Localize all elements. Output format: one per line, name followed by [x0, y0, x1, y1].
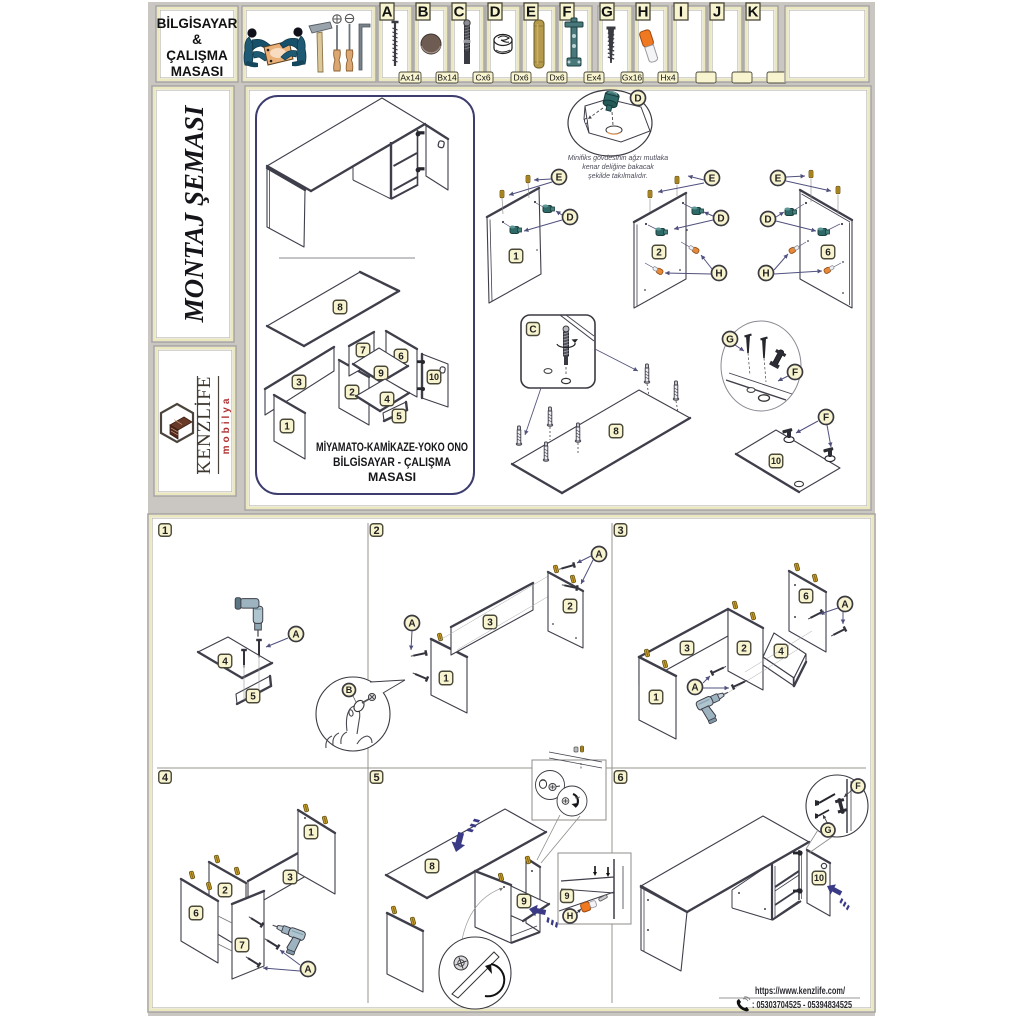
- svg-text:A: A: [292, 630, 299, 641]
- svg-text:1: 1: [653, 693, 659, 704]
- svg-text:5: 5: [373, 772, 379, 784]
- svg-text:KENZLİFE: KENZLİFE: [194, 376, 215, 475]
- svg-text:10: 10: [429, 372, 439, 382]
- svg-text:E: E: [526, 4, 536, 21]
- svg-text:E: E: [709, 174, 716, 185]
- svg-text:2: 2: [567, 602, 573, 613]
- svg-text:E: E: [556, 173, 563, 184]
- svg-text:H: H: [638, 4, 649, 21]
- svg-text:A: A: [382, 4, 393, 21]
- svg-text:H: H: [715, 269, 722, 280]
- svg-text:Minifiks gövdesinin ağzı mutla: Minifiks gövdesinin ağzı mutlaka: [568, 155, 668, 162]
- svg-text:2: 2: [373, 525, 379, 537]
- svg-text:9: 9: [564, 891, 569, 901]
- svg-text:5: 5: [396, 412, 402, 423]
- svg-text:&: &: [192, 32, 202, 47]
- svg-text:G: G: [726, 335, 734, 346]
- svg-text:https://www.kenzlife.com/: https://www.kenzlife.com/: [755, 985, 845, 997]
- svg-text:1: 1: [443, 674, 449, 685]
- svg-text:Dx6: Dx6: [549, 73, 564, 83]
- svg-text:3: 3: [296, 378, 302, 389]
- svg-text:Ax14: Ax14: [400, 73, 420, 83]
- svg-text:H: H: [762, 269, 769, 280]
- svg-text:şekilde takılmalıdır.: şekilde takılmalıdır.: [588, 173, 648, 180]
- svg-text:2: 2: [741, 644, 747, 655]
- svg-text:4: 4: [778, 647, 784, 658]
- svg-text:4: 4: [162, 772, 169, 784]
- svg-text:8: 8: [613, 427, 619, 438]
- svg-text:MİYAMATO-KAMİKAZE-YOKO ONO: MİYAMATO-KAMİKAZE-YOKO ONO: [316, 439, 468, 454]
- svg-text:2: 2: [222, 886, 228, 897]
- svg-text:F: F: [562, 4, 571, 21]
- svg-text:E: E: [775, 174, 782, 185]
- svg-text:F: F: [823, 413, 829, 424]
- svg-text:A: A: [304, 965, 311, 976]
- svg-text:10: 10: [771, 456, 781, 466]
- svg-text:B: B: [418, 4, 429, 21]
- svg-text:kenar deliğine bakacak: kenar deliğine bakacak: [582, 164, 654, 171]
- svg-text:Cx6: Cx6: [475, 73, 490, 83]
- svg-text:3: 3: [287, 873, 293, 884]
- svg-text:MASASI: MASASI: [171, 64, 224, 79]
- svg-text:Hx4: Hx4: [660, 73, 675, 83]
- svg-text:Bx14: Bx14: [437, 73, 457, 83]
- svg-text:I: I: [679, 4, 683, 21]
- svg-text:D: D: [490, 4, 501, 21]
- svg-text:1: 1: [284, 422, 290, 433]
- svg-text:BİLGİSAYAR - ÇALIŞMA: BİLGİSAYAR - ÇALIŞMA: [333, 454, 451, 469]
- svg-text:6: 6: [803, 592, 809, 603]
- svg-text:A: A: [595, 550, 602, 561]
- svg-text:2: 2: [656, 248, 662, 259]
- svg-text:J: J: [713, 4, 721, 21]
- svg-text:A: A: [691, 683, 698, 694]
- svg-text:2: 2: [349, 388, 355, 399]
- svg-text:10: 10: [814, 873, 824, 883]
- svg-text:D: D: [634, 94, 641, 105]
- svg-text:3: 3: [684, 644, 690, 655]
- svg-text:Ex4: Ex4: [587, 73, 602, 83]
- svg-text:H: H: [567, 911, 574, 921]
- svg-text:8: 8: [337, 303, 343, 314]
- svg-text:1: 1: [162, 525, 168, 537]
- svg-text:9: 9: [521, 897, 527, 908]
- svg-text:D: D: [717, 214, 724, 225]
- svg-text:G: G: [601, 4, 613, 21]
- svg-text:: 05303704525 - 05394834525: : 05303704525 - 05394834525: [752, 999, 852, 1011]
- svg-text:4: 4: [222, 657, 228, 668]
- svg-text:A: A: [841, 600, 848, 611]
- svg-text:C: C: [454, 4, 465, 21]
- svg-text:MASASI: MASASI: [368, 470, 416, 484]
- svg-text:F: F: [792, 368, 798, 379]
- svg-text:7: 7: [360, 346, 366, 357]
- svg-text:5: 5: [250, 692, 256, 703]
- svg-text:4: 4: [384, 395, 390, 406]
- svg-text:BİLGİSAYAR: BİLGİSAYAR: [157, 16, 238, 31]
- svg-text:C: C: [529, 325, 536, 336]
- svg-text:Gx16: Gx16: [622, 73, 643, 83]
- svg-text:D: D: [566, 213, 573, 224]
- svg-text:B: B: [346, 685, 353, 695]
- svg-text:K: K: [748, 4, 759, 21]
- svg-text:3: 3: [487, 618, 493, 629]
- svg-text:8: 8: [429, 862, 435, 873]
- svg-text:1: 1: [308, 828, 314, 839]
- svg-text:G: G: [824, 825, 831, 835]
- svg-text:MONTAJ ŞEMASI: MONTAJ ŞEMASI: [179, 104, 209, 323]
- svg-text:9: 9: [378, 369, 384, 380]
- svg-text:ÇALIŞMA: ÇALIŞMA: [166, 48, 228, 63]
- svg-text:D: D: [764, 215, 771, 226]
- svg-text:Dx6: Dx6: [513, 73, 528, 83]
- svg-text:A: A: [408, 619, 415, 630]
- svg-text:6: 6: [825, 248, 831, 259]
- svg-text:7: 7: [239, 941, 245, 952]
- svg-text:1: 1: [513, 252, 519, 263]
- svg-text:mobilya: mobilya: [221, 396, 232, 455]
- svg-text:6: 6: [617, 772, 623, 784]
- svg-text:F: F: [855, 781, 861, 791]
- svg-text:6: 6: [193, 909, 199, 920]
- svg-text:3: 3: [617, 525, 623, 537]
